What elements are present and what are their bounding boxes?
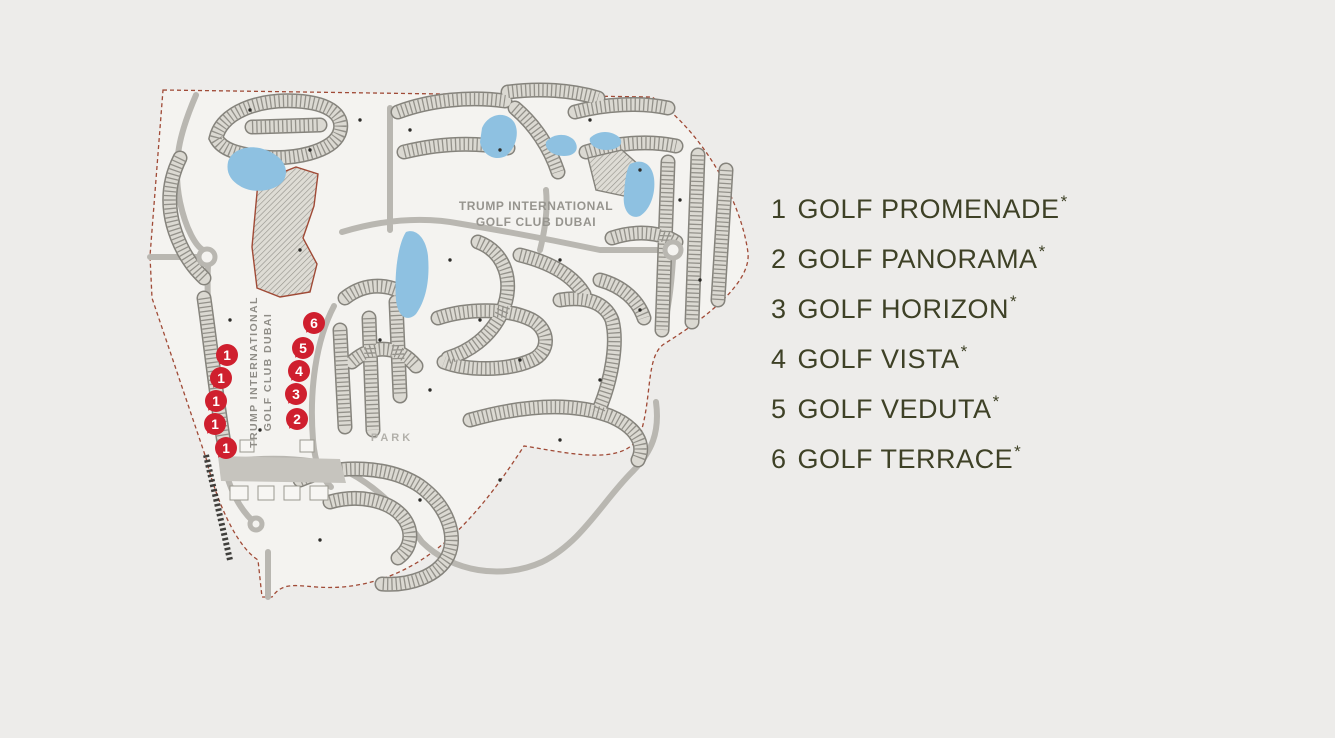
legend-item-golf-vista: 4 GOLF VISTA * — [771, 337, 1068, 387]
map-label-park: PARK — [371, 432, 413, 444]
map-label-club-horizontal-line2: GOLF CLUB DUBAI — [476, 215, 596, 229]
legend-label: GOLF PROMENADE — [798, 187, 1060, 231]
marker-2: 2 — [286, 408, 308, 430]
legend-number: 6 — [771, 437, 787, 481]
marker-1-e: 1 — [215, 437, 237, 459]
marker-1-d: 1 — [204, 413, 226, 435]
legend-number: 5 — [771, 387, 787, 431]
map-label-club-vertical-line1: TRUMP INTERNATIONAL — [248, 296, 260, 448]
legend-label: GOLF PANORAMA — [798, 237, 1038, 281]
legend-number: 3 — [771, 287, 787, 331]
legend-item-golf-terrace: 6 GOLF TERRACE * — [771, 437, 1068, 487]
legend-asterisk: * — [1039, 237, 1046, 267]
legend-label: GOLF HORIZON — [798, 287, 1010, 331]
marker-1-c: 1 — [205, 390, 227, 412]
legend-item-golf-promenade: 1 GOLF PROMENADE * — [771, 187, 1068, 237]
marker-3: 3 — [285, 383, 307, 405]
legend-number: 4 — [771, 337, 787, 381]
legend-asterisk: * — [1061, 187, 1068, 217]
page: TRUMP INTERNATIONAL GOLF CLUB DUBAI TRUM… — [0, 0, 1335, 738]
marker-5: 5 — [292, 337, 314, 359]
legend-number: 2 — [771, 237, 787, 281]
legend-label: GOLF VISTA — [798, 337, 960, 381]
legend-item-golf-panorama: 2 GOLF PANORAMA * — [771, 237, 1068, 287]
roundabout-west — [199, 249, 215, 265]
legend-number: 1 — [771, 187, 787, 231]
marker-1-a: 1 — [216, 344, 238, 366]
masterplan-map: TRUMP INTERNATIONAL GOLF CLUB DUBAI TRUM… — [0, 0, 1335, 738]
legend: 1 GOLF PROMENADE * 2 GOLF PANORAMA * 3 G… — [771, 187, 1068, 487]
legend-label: GOLF TERRACE — [798, 437, 1014, 481]
map-label-club-horizontal-line1: TRUMP INTERNATIONAL — [459, 199, 613, 213]
marker-1-b: 1 — [210, 367, 232, 389]
legend-asterisk: * — [1014, 437, 1021, 467]
legend-label: GOLF VEDUTA — [798, 387, 992, 431]
legend-asterisk: * — [961, 337, 968, 367]
map-label-club-vertical-line2: GOLF CLUB DUBAI — [262, 313, 274, 431]
town-centre-strip — [218, 456, 346, 483]
legend-item-golf-veduta: 5 GOLF VEDUTA * — [771, 387, 1068, 437]
marker-4: 4 — [288, 360, 310, 382]
marker-6: 6 — [303, 312, 325, 334]
legend-asterisk: * — [993, 387, 1000, 417]
roundabout-south — [250, 518, 262, 530]
legend-asterisk: * — [1010, 287, 1017, 317]
roundabout-east — [665, 242, 681, 258]
legend-item-golf-horizon: 3 GOLF HORIZON * — [771, 287, 1068, 337]
